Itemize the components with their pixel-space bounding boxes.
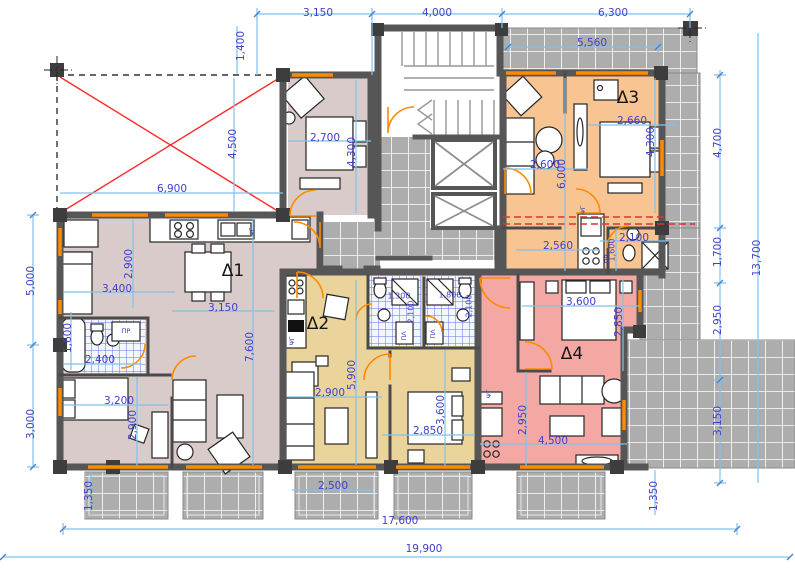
floor-plan-canvas: 3,1504,0006,3005,5601,4004,5005,0003,000… bbox=[0, 0, 795, 578]
floor-plan-drawing bbox=[0, 0, 795, 578]
void-area bbox=[57, 75, 283, 215]
elevator-shafts bbox=[433, 140, 495, 228]
balconies bbox=[85, 472, 605, 519]
staircase bbox=[382, 32, 499, 136]
